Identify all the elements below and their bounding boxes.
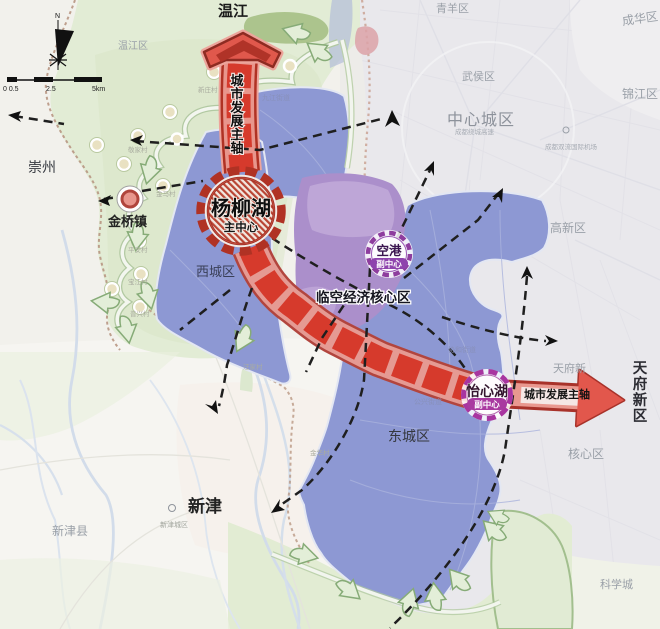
svg-text:平安村: 平安村: [128, 245, 148, 254]
svg-text:协和街道: 协和街道: [448, 345, 476, 354]
svg-text:武侯区: 武侯区: [462, 69, 495, 83]
svg-text:新庄村: 新庄村: [198, 85, 218, 94]
svg-text:高新区: 高新区: [550, 220, 586, 235]
svg-text:空港: 空港: [376, 243, 402, 258]
svg-text:5km: 5km: [92, 86, 105, 93]
svg-text:城市发展主轴: 城市发展主轴: [229, 73, 244, 156]
svg-text:城市发展主轴: 城市发展主轴: [524, 387, 590, 401]
svg-text:成都双流国际机场: 成都双流国际机场: [545, 142, 598, 151]
svg-text:锦江区: 锦江区: [622, 87, 658, 101]
svg-text:主中心: 主中心: [224, 220, 259, 234]
svg-text:0 0.5: 0 0.5: [3, 86, 19, 93]
svg-text:温江区: 温江区: [118, 40, 148, 52]
svg-text:东城区: 东城区: [388, 428, 430, 444]
svg-text:中心城区: 中心城区: [447, 111, 515, 129]
svg-text:金马村: 金马村: [156, 189, 176, 198]
svg-text:科学城: 科学城: [600, 577, 633, 591]
svg-text:普兴村: 普兴村: [130, 309, 150, 318]
svg-text:西城区: 西城区: [196, 264, 235, 279]
svg-text:副中心: 副中心: [376, 259, 402, 269]
svg-text:敬家村: 敬家村: [128, 145, 148, 154]
svg-text:崇州: 崇州: [28, 159, 56, 175]
svg-text:核心区: 核心区: [568, 447, 604, 461]
svg-text:临空经济核心区: 临空经济核心区: [316, 289, 411, 305]
svg-text:新津: 新津: [188, 496, 222, 516]
svg-text:N: N: [55, 13, 60, 20]
svg-text:新津县: 新津县: [52, 523, 88, 538]
svg-text:温江: 温江: [218, 2, 248, 20]
svg-text:新津城区: 新津城区: [160, 520, 188, 529]
svg-text:2.5: 2.5: [46, 86, 56, 93]
svg-text:青羊区: 青羊区: [436, 1, 469, 15]
svg-text:金华村: 金华村: [310, 448, 330, 457]
svg-text:副中心: 副中心: [474, 400, 500, 410]
svg-text:天府新区: 天府新区: [633, 360, 648, 425]
svg-text:怡心湖: 怡心湖: [466, 383, 508, 399]
svg-text:金桥镇: 金桥镇: [107, 214, 147, 229]
svg-text:公兴街道: 公兴街道: [414, 397, 442, 406]
svg-text:杨柳湖: 杨柳湖: [211, 196, 271, 220]
svg-text:九江街道: 九江街道: [262, 93, 290, 102]
svg-text:宝江村: 宝江村: [128, 277, 148, 286]
svg-text:汪家村: 汪家村: [243, 362, 263, 371]
svg-text:天府新: 天府新: [553, 361, 586, 375]
